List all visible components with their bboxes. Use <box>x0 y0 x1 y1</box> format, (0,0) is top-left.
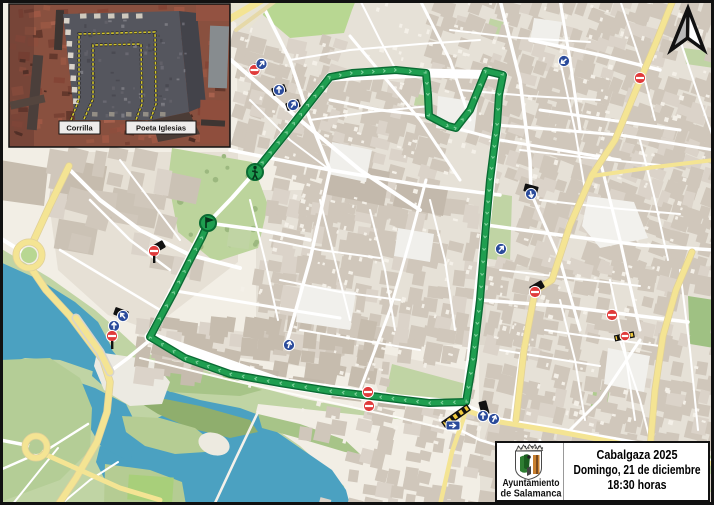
svg-text:de Salamanca: de Salamanca <box>501 488 562 500</box>
svg-text:18:30 horas: 18:30 horas <box>608 477 667 492</box>
svg-text:Cabalgaza 2025: Cabalgaza 2025 <box>597 447 678 462</box>
svg-text:Domingo, 21 de diciembre: Domingo, 21 de diciembre <box>574 462 701 477</box>
